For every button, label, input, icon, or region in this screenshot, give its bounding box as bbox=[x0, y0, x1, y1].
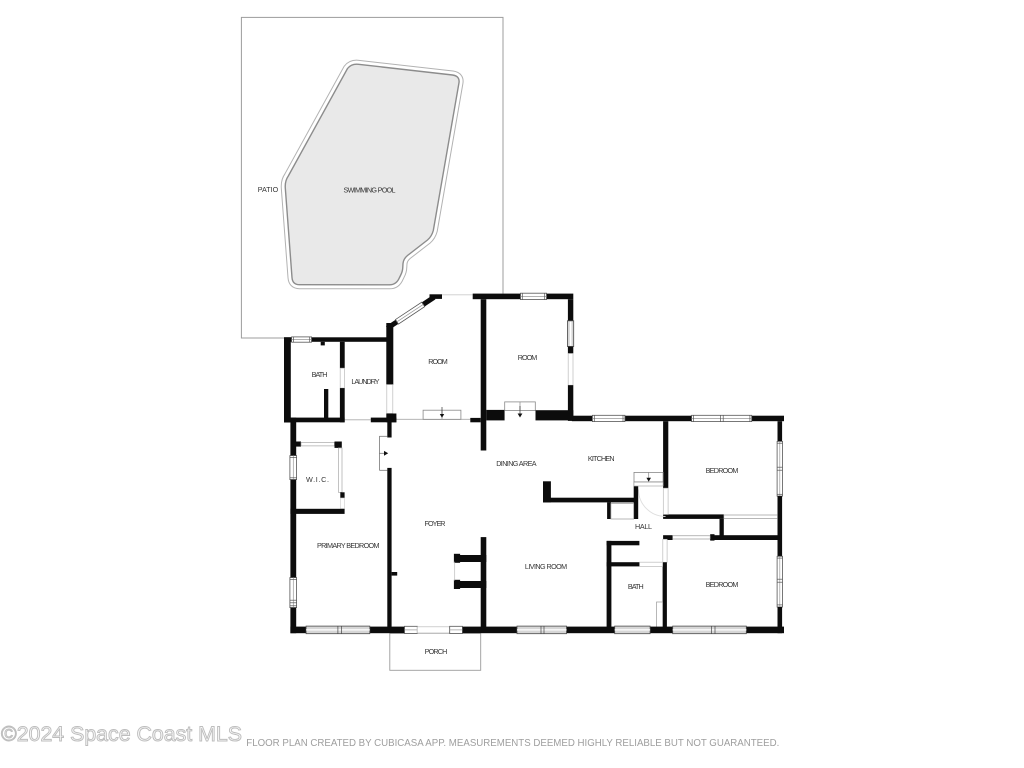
svg-text:LIVING ROOM: LIVING ROOM bbox=[525, 562, 567, 571]
svg-text:©2024 Space Coast MLS: ©2024 Space Coast MLS bbox=[1, 722, 242, 746]
svg-text:W.I.C.: W.I.C. bbox=[306, 475, 329, 484]
svg-text:PATIO: PATIO bbox=[258, 185, 279, 194]
svg-text:PRIMARY BEDROOM: PRIMARY BEDROOM bbox=[317, 541, 380, 550]
svg-text:FLOOR PLAN CREATED BY CUBICASA: FLOOR PLAN CREATED BY CUBICASA APP. MEAS… bbox=[246, 738, 779, 749]
svg-text:SWIMMING POOL: SWIMMING POOL bbox=[344, 186, 396, 195]
svg-text:HALL: HALL bbox=[635, 522, 652, 531]
svg-text:BEDROOM: BEDROOM bbox=[706, 580, 739, 589]
svg-text:BEDROOM: BEDROOM bbox=[706, 466, 739, 475]
svg-text:ROOM: ROOM bbox=[518, 353, 538, 362]
svg-text:DINING AREA: DINING AREA bbox=[496, 459, 537, 468]
svg-text:BATH: BATH bbox=[628, 582, 644, 591]
svg-text:BATH: BATH bbox=[312, 370, 328, 379]
svg-text:ROOM: ROOM bbox=[428, 357, 448, 366]
svg-text:FOYER: FOYER bbox=[425, 519, 446, 528]
svg-text:LAUNDRY: LAUNDRY bbox=[351, 377, 379, 386]
svg-text:KITCHEN: KITCHEN bbox=[588, 454, 615, 463]
svg-text:PORCH: PORCH bbox=[425, 647, 448, 656]
